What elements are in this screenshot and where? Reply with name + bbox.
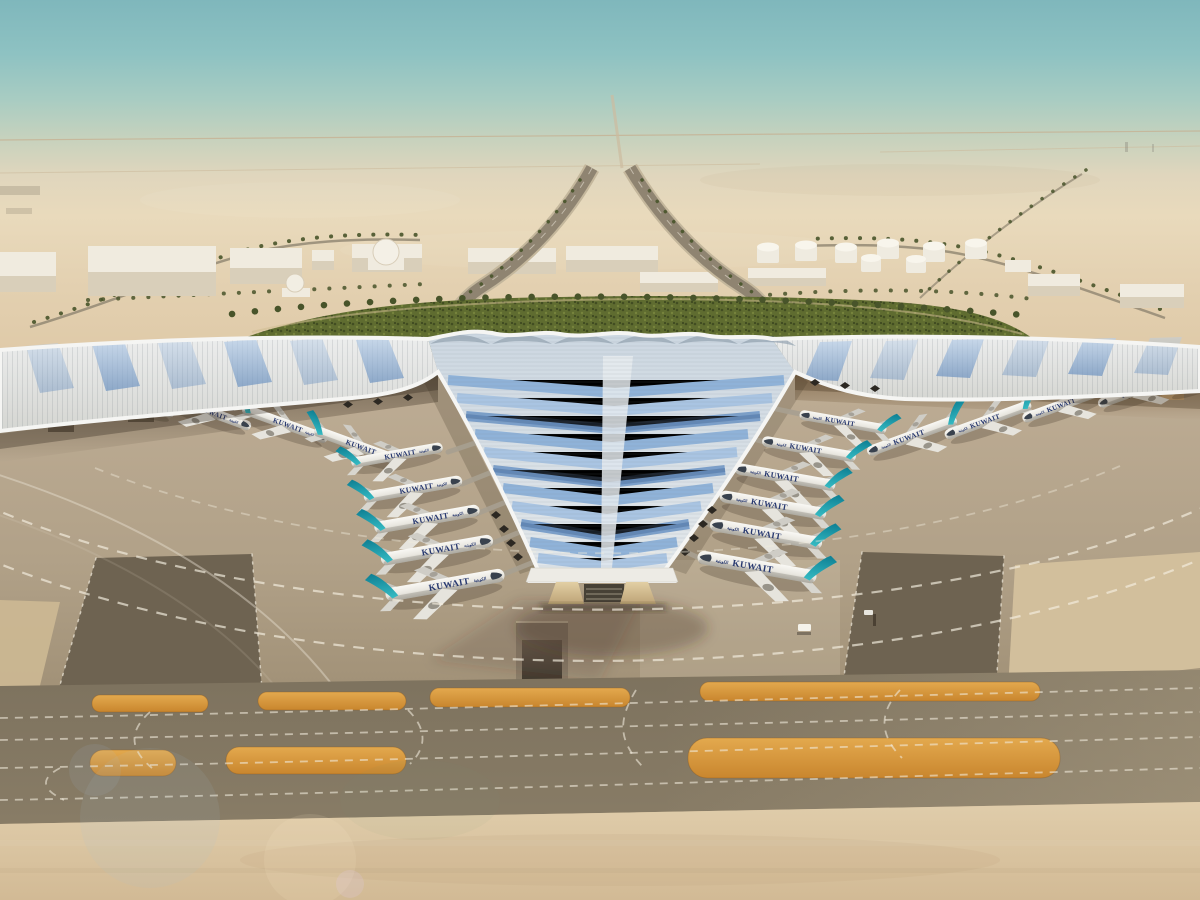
dome-building <box>286 274 304 292</box>
scene: Kuwait International Airport terminal — … <box>0 0 1200 900</box>
sand-patch <box>1008 552 1200 690</box>
apex-fascia <box>526 568 678 582</box>
fuel-tank <box>906 255 926 273</box>
dome-building <box>373 239 399 265</box>
fuel-tank <box>877 239 899 260</box>
taxilane-right <box>842 552 1004 690</box>
terminal-entrance <box>540 582 666 611</box>
fuel-tank <box>757 243 779 264</box>
fuel-tank <box>965 239 987 260</box>
airport-rendering: Kuwait International Airport terminal — … <box>0 0 1200 900</box>
fuel-tank <box>795 241 817 262</box>
service-van <box>798 624 811 631</box>
fuel-tank <box>861 254 881 272</box>
fuel-tank <box>923 242 945 263</box>
service-cart <box>864 610 873 615</box>
fuel-tank <box>835 243 857 264</box>
